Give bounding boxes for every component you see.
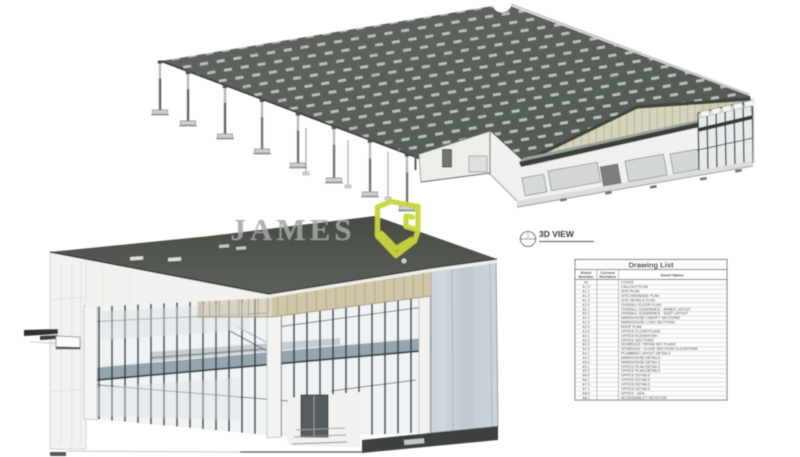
svg-text:A7.1: A7.1 [582, 387, 589, 391]
svg-text:OFFICE DETAILS: OFFICE DETAILS [621, 374, 650, 378]
svg-text:OFFICE SECTIONS: OFFICE SECTIONS [621, 338, 654, 342]
svg-text:3D VIEW: 3D VIEW [539, 229, 575, 239]
svg-text:SITE PLAN: SITE PLAN [621, 290, 640, 294]
svg-text:A5.2: A5.2 [582, 369, 589, 373]
svg-text:JAMES: JAMES [230, 212, 355, 247]
svg-text:A2.0: A2.0 [582, 303, 589, 307]
svg-text:A2.2: A2.2 [582, 312, 589, 316]
svg-text:A3.1: A3.1 [582, 334, 589, 338]
svg-text:A2.5: A2.5 [582, 325, 589, 329]
svg-text:SCHEDULE / ROOM KEY PLANS: SCHEDULE / ROOM KEY PLANS [621, 343, 676, 347]
svg-text:A6.0: A6.0 [582, 374, 589, 378]
svg-text:SITE DETAILS PLAN: SITE DETAILS PLAN [621, 298, 655, 302]
svg-text:A4.1: A4.1 [582, 352, 589, 356]
svg-text:ROOF PLAN: ROOF PLAN [621, 325, 642, 329]
svg-text:A4.2: A4.2 [582, 356, 589, 360]
svg-text:ACCESSIBILITY NOTATION: ACCESSIBILITY NOTATION [621, 396, 667, 400]
svg-text:OFFICE ELEVATIONS: OFFICE ELEVATIONS [621, 334, 658, 338]
svg-text:A5.1: A5.1 [582, 365, 589, 369]
svg-text:A1.3: A1.3 [582, 298, 589, 302]
svg-text:Revision: Revision [599, 274, 616, 279]
svg-text:A1.1: A1.1 [582, 290, 589, 294]
svg-text:OFFICE - ADA: OFFICE - ADA [621, 391, 645, 395]
svg-text:OFFICE DETAILS: OFFICE DETAILS [621, 387, 650, 391]
svg-text:OFFICE PLAN DETAILS: OFFICE PLAN DETAILS [621, 369, 661, 373]
svg-text:COVER: COVER [621, 281, 634, 285]
svg-text:OVERALL CLEARANCE - ANNEX LAYO: OVERALL CLEARANCE - ANNEX LAYOUT [621, 307, 692, 311]
svg-text:SITE DRAINAGE PLAN: SITE DRAINAGE PLAN [621, 294, 660, 298]
svg-text:WAREHOUSE LONG SECTIONS: WAREHOUSE LONG SECTIONS [621, 321, 676, 325]
svg-text:A2.3: A2.3 [582, 316, 589, 320]
svg-text:SCHEDULE / GLAZE SECTIONS ELEV: SCHEDULE / GLAZE SECTIONS ELEVATIONS [621, 347, 698, 351]
svg-text:A3.2: A3.2 [582, 338, 589, 342]
svg-text:WAREHOUSE CANOPY SECTIONS: WAREHOUSE CANOPY SECTIONS [621, 316, 681, 320]
svg-text:CALLOUT PLAN: CALLOUT PLAN [621, 285, 648, 289]
svg-text:OFFICE DETAILS: OFFICE DETAILS [621, 383, 650, 387]
svg-text:A5.0: A5.0 [582, 360, 589, 364]
svg-text:A3.0: A3.0 [582, 329, 589, 333]
svg-text:A4.0: A4.0 [582, 347, 589, 351]
svg-text:OFFICE DETAILS: OFFICE DETAILS [621, 378, 650, 382]
svg-text:OFFICE PLAN DETAILS: OFFICE PLAN DETAILS [621, 365, 661, 369]
svg-text:OFFICE FLOOR PLANS: OFFICE FLOOR PLANS [621, 329, 661, 333]
svg-text:A6.1: A6.1 [582, 378, 589, 382]
svg-text:OVERALL FLOOR PLAN: OVERALL FLOOR PLAN [621, 303, 662, 307]
svg-text:Drawing List: Drawing List [628, 261, 674, 270]
svg-text:A2.1: A2.1 [582, 307, 589, 311]
svg-text:OVERALL CLEARANCE - EAST LAYOU: OVERALL CLEARANCE - EAST LAYOUT [621, 312, 689, 316]
svg-text:A7.0: A7.0 [582, 383, 589, 387]
svg-text:Number: Number [578, 274, 594, 279]
svg-text:WAREHOUSE DETAILS: WAREHOUSE DETAILS [621, 356, 661, 360]
svg-text:Sheet Name: Sheet Name [661, 273, 685, 278]
svg-text:A0: A0 [584, 281, 588, 285]
svg-text:A1.0: A1.0 [582, 285, 589, 289]
svg-text:A3.3: A3.3 [582, 343, 589, 347]
svg-text:A8.1: A8.1 [582, 396, 589, 400]
svg-text:A2.4: A2.4 [582, 321, 589, 325]
svg-text:A1.2: A1.2 [582, 294, 589, 298]
svg-text:PLUMBING LAYOUT DETAILS: PLUMBING LAYOUT DETAILS [621, 352, 671, 356]
svg-text:WAREHOUSE DETAILS: WAREHOUSE DETAILS [621, 360, 661, 364]
svg-text:A8.0: A8.0 [582, 391, 589, 395]
